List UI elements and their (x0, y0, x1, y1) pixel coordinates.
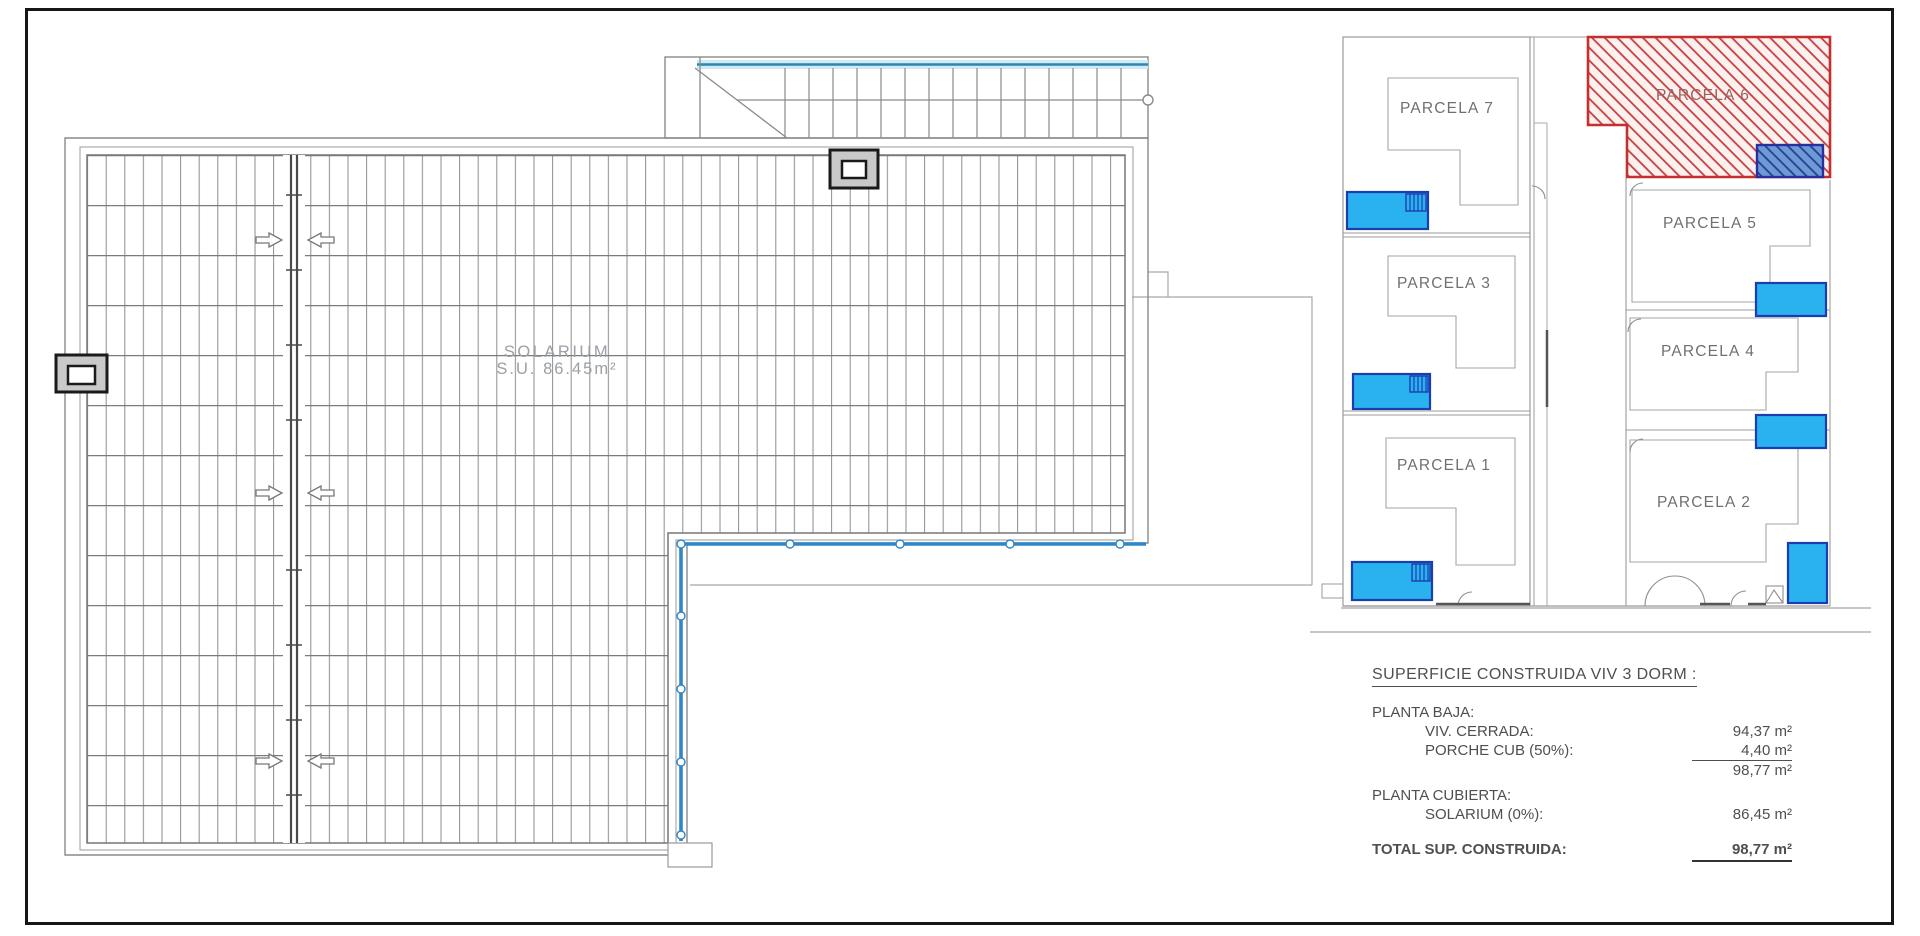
parcela-4-label: PARCELA 4 (1661, 343, 1755, 360)
summary-row-total: TOTAL SUP. CONSTRUIDA: 98,77 m² (1372, 840, 1792, 862)
viv-cerrada-label: VIV. CERRADA: (1372, 722, 1692, 741)
summary-row-planta-cubierta: PLANTA CUBIERTA: (1372, 786, 1792, 805)
parcela-1-label: PARCELA 1 (1397, 457, 1491, 474)
viv-cerrada-value: 94,37 m² (1692, 722, 1792, 741)
pool-parcela-4 (1756, 415, 1826, 448)
summary-title: SUPERFICIE CONSTRUIDA VIV 3 DORM : (1372, 666, 1697, 687)
planta-baja-subtotal: 98,77 m² (1692, 761, 1792, 780)
parcela-3-label: PARCELA 3 (1397, 275, 1491, 292)
main-roof-plan: SOLARIUM S.U. 86.45m² (56, 57, 1312, 867)
porche-value: 4,40 m² (1692, 741, 1792, 761)
solarium-row-value: 86,45 m² (1692, 805, 1792, 824)
parcela-5-label: PARCELA 5 (1663, 215, 1757, 232)
parcela-2-label: PARCELA 2 (1657, 494, 1751, 511)
summary-row-subtotal: 98,77 m² (1372, 761, 1792, 780)
summary-row-planta-baja: PLANTA BAJA: (1372, 703, 1792, 722)
site-key-plan: PARCELA 7 PARCELA 3 PARCELA 1 PARCELA 6 … (1310, 37, 1871, 632)
stair-handrail-end (1143, 95, 1153, 105)
solarium-row-label: SOLARIUM (0%): (1372, 805, 1692, 824)
pool-parcela-2 (1788, 543, 1827, 603)
solarium-area-label: S.U. 86.45m² (496, 360, 617, 378)
chimney-symbol-left (56, 355, 107, 392)
total-value: 98,77 m² (1692, 840, 1792, 862)
surface-summary: SUPERFICIE CONSTRUIDA VIV 3 DORM : PLANT… (1372, 666, 1792, 862)
planta-cubierta-label: PLANTA CUBIERTA: (1372, 786, 1792, 805)
summary-row-solarium: SOLARIUM (0%): 86,45 m² (1372, 805, 1792, 824)
chimney-symbol-top (830, 150, 878, 188)
summary-row-porche: PORCHE CUB (50%): 4,40 m² (1372, 741, 1792, 761)
solarium-label: SOLARIUM (504, 343, 610, 361)
pool-parcela-5 (1756, 283, 1826, 316)
left-plot-column (1343, 37, 1530, 606)
planta-baja-label: PLANTA BAJA: (1372, 703, 1792, 722)
bottom-step (668, 843, 712, 867)
parcela-7-label: PARCELA 7 (1400, 100, 1494, 117)
parcela-6-label: PARCELA 6 (1656, 87, 1750, 104)
parcela-6-pool (1757, 145, 1823, 177)
staircase (665, 57, 1153, 138)
roof-gutter (283, 155, 305, 843)
total-label: TOTAL SUP. CONSTRUIDA: (1372, 840, 1692, 862)
porche-label: PORCHE CUB (50%): (1372, 741, 1692, 761)
summary-row-viv-cerrada: VIV. CERRADA: 94,37 m² (1372, 722, 1792, 741)
solarium-tiled-area (87, 155, 1125, 843)
